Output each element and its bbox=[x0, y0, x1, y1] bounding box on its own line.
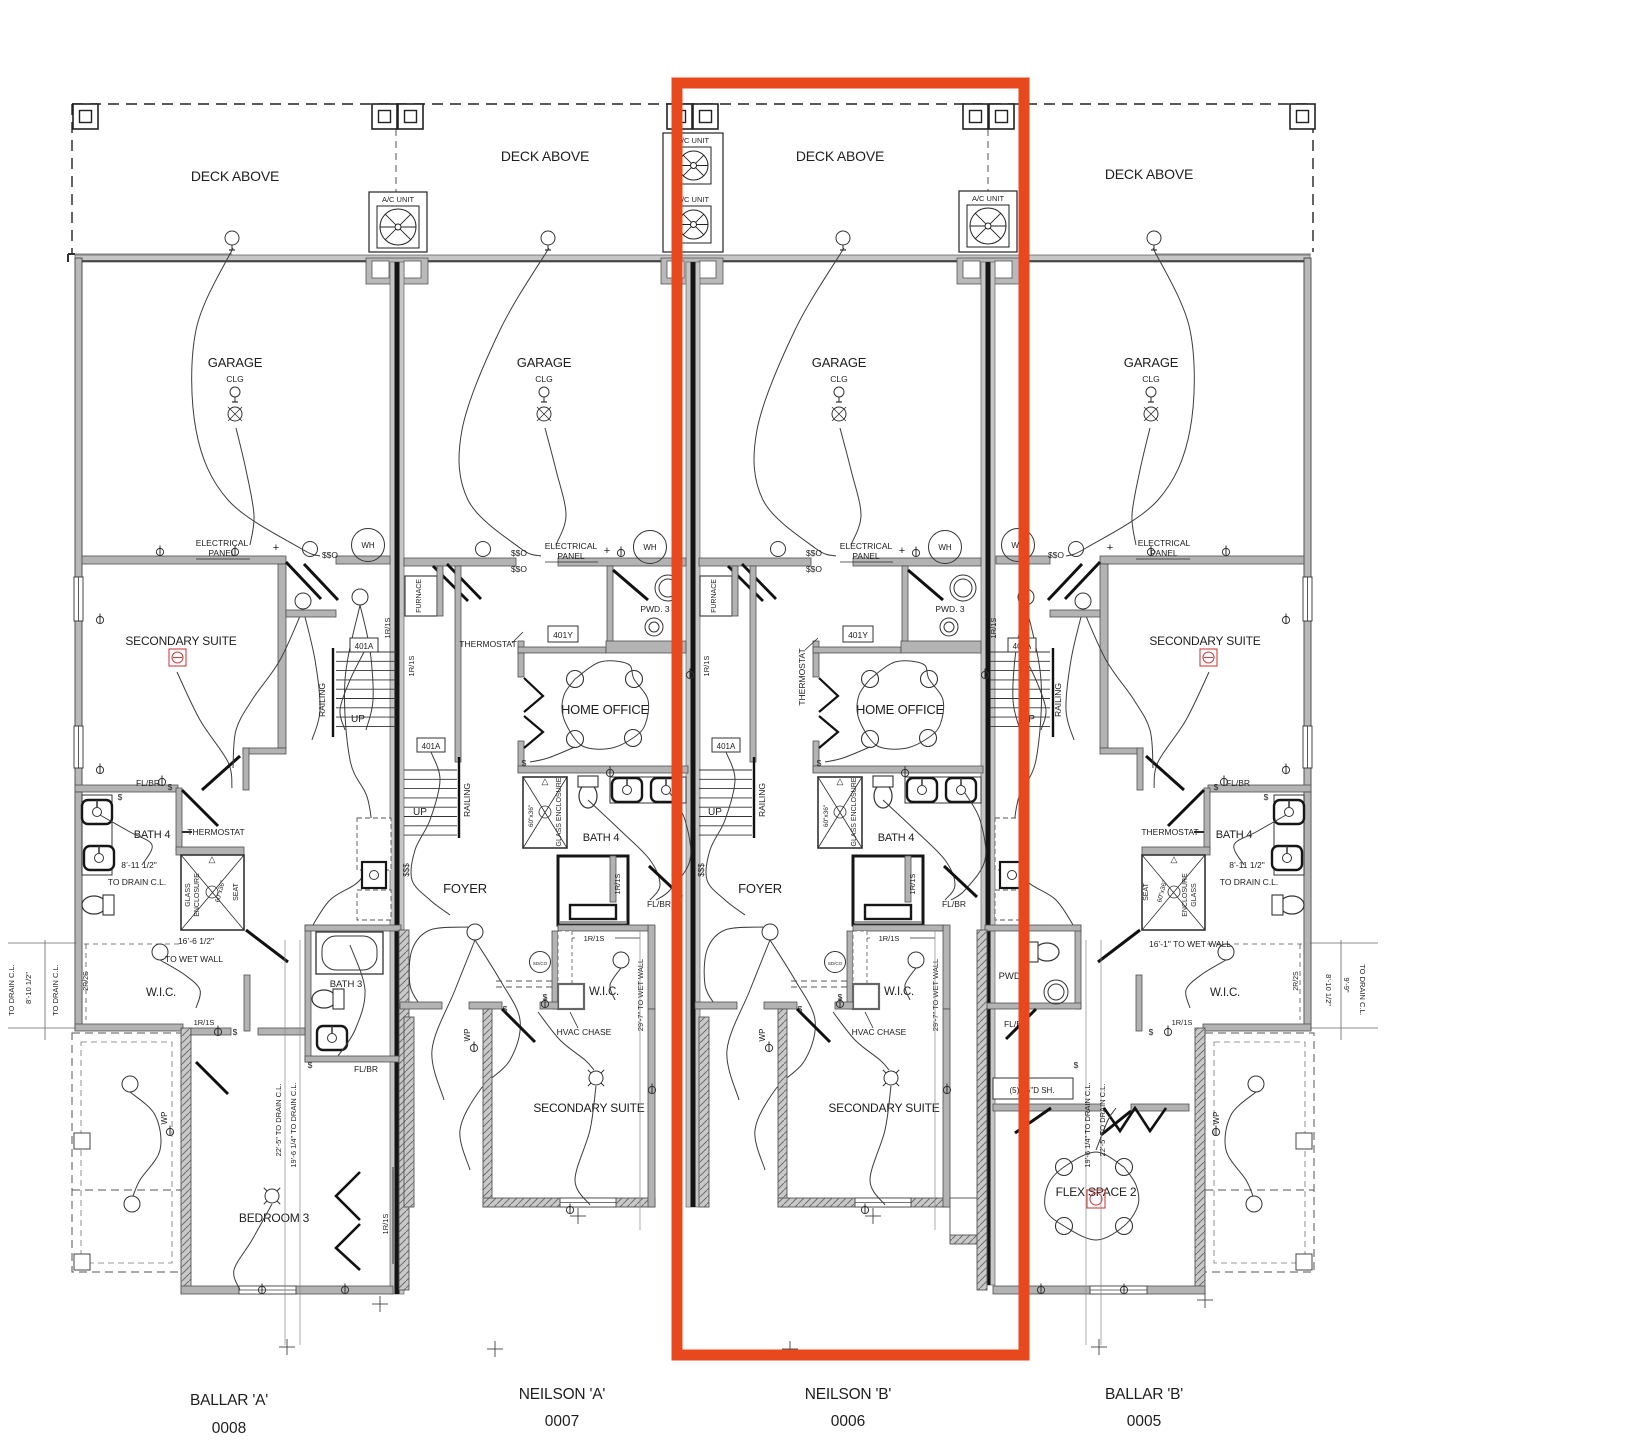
svg-text:GLASS ENCLOSURE: GLASS ENCLOSURE bbox=[556, 777, 563, 846]
svg-text:$: $ bbox=[1214, 782, 1219, 792]
svg-text:ENCLOSURE: ENCLOSURE bbox=[194, 873, 201, 917]
svg-text:FL/BR: FL/BR bbox=[136, 778, 160, 788]
svg-text:FLEX SPACE 2: FLEX SPACE 2 bbox=[1056, 1185, 1137, 1199]
svg-text:UP: UP bbox=[351, 714, 365, 725]
svg-text:HVAC CHASE: HVAC CHASE bbox=[852, 1027, 907, 1037]
svg-text:FOYER: FOYER bbox=[738, 881, 782, 896]
svg-text:22’-5" TO DRAIN C.L.: 22’-5" TO DRAIN C.L. bbox=[274, 1084, 283, 1157]
svg-text:ELECTRICAL: ELECTRICAL bbox=[840, 541, 893, 551]
svg-text:FURNACE: FURNACE bbox=[711, 579, 718, 613]
svg-text:$: $ bbox=[522, 758, 527, 768]
svg-text:RAILING: RAILING bbox=[1053, 683, 1063, 717]
svg-text:△: △ bbox=[837, 776, 844, 786]
svg-text:SEAT: SEAT bbox=[1143, 882, 1150, 900]
svg-text:$: $ bbox=[798, 1004, 803, 1014]
svg-text:9’-9": 9’-9" bbox=[1342, 977, 1351, 993]
svg-text:△: △ bbox=[209, 854, 216, 864]
svg-text:PANEL: PANEL bbox=[852, 551, 880, 561]
svg-text:FL/BR: FL/BR bbox=[1226, 778, 1250, 788]
svg-text:$: $ bbox=[118, 792, 123, 802]
svg-text:$: $ bbox=[1149, 1027, 1154, 1037]
svg-text:SECONDARY SUITE: SECONDARY SUITE bbox=[828, 1101, 939, 1115]
svg-text:19’-6 1/4" TO DRAIN C.L.: 19’-6 1/4" TO DRAIN C.L. bbox=[289, 1082, 298, 1167]
svg-text:DECK ABOVE: DECK ABOVE bbox=[501, 148, 589, 164]
svg-text:W.I.C.: W.I.C. bbox=[146, 987, 176, 999]
svg-text:+: + bbox=[1107, 542, 1113, 554]
svg-text:TO DRAIN C.L.: TO DRAIN C.L. bbox=[7, 964, 16, 1016]
svg-text:1R/1S: 1R/1S bbox=[989, 618, 998, 639]
svg-text:NEILSON 'B': NEILSON 'B' bbox=[805, 1386, 892, 1403]
svg-text:$$$: $$$ bbox=[697, 863, 706, 877]
svg-text:ELECTRICAL: ELECTRICAL bbox=[1138, 538, 1191, 548]
svg-text:GLASS ENCLOSURE: GLASS ENCLOSURE bbox=[851, 777, 858, 846]
svg-text:A/C UNIT: A/C UNIT bbox=[382, 195, 415, 204]
svg-text:8’-10 1/2": 8’-10 1/2" bbox=[24, 972, 33, 1004]
svg-text:0006: 0006 bbox=[831, 1413, 865, 1430]
svg-text:RAILING: RAILING bbox=[317, 683, 327, 717]
svg-text:FL/BR: FL/BR bbox=[647, 899, 671, 909]
svg-text:22’-5" TO DRAIN C.L.: 22’-5" TO DRAIN C.L. bbox=[1098, 1084, 1107, 1157]
svg-text:8’-10 1/2": 8’-10 1/2" bbox=[1324, 974, 1333, 1006]
svg-text:1R/1S: 1R/1S bbox=[702, 656, 711, 677]
svg-text:60"x36": 60"x36" bbox=[823, 804, 830, 827]
svg-text:CLG: CLG bbox=[226, 374, 243, 384]
svg-text:$: $ bbox=[817, 758, 822, 768]
svg-text:BATH 4: BATH 4 bbox=[134, 829, 171, 841]
svg-text:TO WET WALL: TO WET WALL bbox=[165, 954, 223, 964]
svg-text:GARAGE: GARAGE bbox=[812, 355, 867, 370]
svg-text:401Y: 401Y bbox=[553, 630, 573, 640]
svg-text:RAILING: RAILING bbox=[757, 783, 767, 817]
svg-text:CLG: CLG bbox=[830, 374, 847, 384]
svg-text:DECK ABOVE: DECK ABOVE bbox=[1105, 166, 1193, 182]
svg-text:BATH 4: BATH 4 bbox=[583, 832, 620, 844]
svg-text:$$O: $$O bbox=[511, 564, 527, 574]
svg-text:$$O: $$O bbox=[322, 550, 338, 560]
svg-text:$$O: $$O bbox=[1048, 550, 1064, 560]
svg-text:GARAGE: GARAGE bbox=[517, 355, 572, 370]
svg-text:$: $ bbox=[233, 1027, 238, 1037]
svg-text:+: + bbox=[604, 545, 610, 557]
svg-text:FL/BR: FL/BR bbox=[942, 899, 966, 909]
svg-text:$: $ bbox=[503, 1004, 508, 1014]
svg-text:8’-11 1/2": 8’-11 1/2" bbox=[1229, 860, 1264, 870]
svg-text:UP: UP bbox=[708, 807, 722, 818]
svg-text:1R/1S: 1R/1S bbox=[194, 1018, 215, 1027]
svg-text:1R/1S: 1R/1S bbox=[383, 618, 392, 639]
svg-text:W.I.C.: W.I.C. bbox=[589, 986, 619, 998]
svg-text:TO DRAIN C.L.: TO DRAIN C.L. bbox=[1220, 877, 1278, 887]
svg-text:1R/1S: 1R/1S bbox=[407, 656, 416, 677]
svg-text:UP: UP bbox=[413, 807, 427, 818]
svg-text:A/C UNIT: A/C UNIT bbox=[972, 194, 1005, 203]
svg-text:FURNACE: FURNACE bbox=[416, 579, 423, 613]
svg-text:GLASS: GLASS bbox=[185, 883, 192, 907]
svg-text:PWD. 3: PWD. 3 bbox=[935, 604, 965, 614]
svg-text:1R/1S: 1R/1S bbox=[584, 934, 605, 943]
svg-text:$: $ bbox=[308, 1060, 313, 1070]
svg-text:29’-7" TO WET WALL: 29’-7" TO WET WALL bbox=[931, 959, 940, 1031]
svg-text:WH: WH bbox=[361, 541, 375, 550]
svg-text:401Y: 401Y bbox=[848, 630, 868, 640]
svg-text:29’-7" TO WET WALL: 29’-7" TO WET WALL bbox=[636, 959, 645, 1031]
svg-text:FL/BR: FL/BR bbox=[354, 1064, 378, 1074]
svg-text:1R/1S: 1R/1S bbox=[879, 934, 900, 943]
svg-text:1R/1S: 1R/1S bbox=[381, 1214, 390, 1235]
svg-text:BATH 4: BATH 4 bbox=[1216, 829, 1253, 841]
svg-text:TO DRAIN C.L.: TO DRAIN C.L. bbox=[1358, 964, 1367, 1016]
svg-text:0008: 0008 bbox=[212, 1420, 246, 1437]
svg-text:16’-6 1/2": 16’-6 1/2" bbox=[178, 936, 214, 946]
svg-text:ENCLOSURE: ENCLOSURE bbox=[1182, 873, 1189, 917]
svg-text:BATH 3: BATH 3 bbox=[330, 979, 363, 990]
svg-text:DECK ABOVE: DECK ABOVE bbox=[796, 148, 884, 164]
svg-text:CLG: CLG bbox=[1142, 374, 1159, 384]
svg-text:BATH 4: BATH 4 bbox=[878, 832, 915, 844]
svg-text:2R/2S: 2R/2S bbox=[1293, 971, 1300, 991]
svg-text:(5) 16"D SH.: (5) 16"D SH. bbox=[1009, 1086, 1054, 1095]
svg-text:THERMOSTAT: THERMOSTAT bbox=[459, 639, 516, 649]
svg-text:W.I.C.: W.I.C. bbox=[884, 986, 914, 998]
svg-text:GARAGE: GARAGE bbox=[1124, 355, 1179, 370]
svg-text:19’-6 1/4" TO DRAIN C.L.: 19’-6 1/4" TO DRAIN C.L. bbox=[1083, 1082, 1092, 1167]
svg-text:THERMOSTAT: THERMOSTAT bbox=[1141, 827, 1198, 837]
svg-text:WP: WP bbox=[758, 1029, 767, 1042]
svg-text:$$O: $$O bbox=[806, 548, 822, 558]
svg-text:RAILING: RAILING bbox=[462, 783, 472, 817]
svg-text:$: $ bbox=[1264, 792, 1269, 802]
svg-text:$: $ bbox=[1074, 1060, 1079, 1070]
svg-text:ELECTRICAL: ELECTRICAL bbox=[545, 541, 598, 551]
svg-text:8’-11 1/2": 8’-11 1/2" bbox=[121, 860, 156, 870]
svg-text:ELECTRICAL: ELECTRICAL bbox=[196, 538, 249, 548]
svg-text:$$O: $$O bbox=[806, 564, 822, 574]
svg-text:BALLAR 'A': BALLAR 'A' bbox=[190, 1392, 268, 1409]
svg-text:GLASS: GLASS bbox=[1191, 883, 1198, 907]
svg-text:DECK ABOVE: DECK ABOVE bbox=[191, 168, 279, 184]
svg-text:0007: 0007 bbox=[545, 1413, 579, 1430]
svg-text:$: $ bbox=[838, 992, 843, 1002]
svg-text:NEILSON 'A': NEILSON 'A' bbox=[519, 1386, 606, 1403]
svg-text:1R/1S: 1R/1S bbox=[1172, 1018, 1193, 1027]
svg-text:HOME OFFICE: HOME OFFICE bbox=[561, 702, 650, 717]
svg-text:GARAGE: GARAGE bbox=[208, 355, 263, 370]
svg-text:HOME OFFICE: HOME OFFICE bbox=[856, 702, 945, 717]
svg-text:+: + bbox=[273, 542, 279, 554]
svg-text:WP: WP bbox=[1212, 1112, 1221, 1125]
svg-text:FOYER: FOYER bbox=[443, 881, 487, 896]
svg-text:PWD. 3: PWD. 3 bbox=[640, 604, 670, 614]
svg-text:△: △ bbox=[542, 776, 549, 786]
svg-text:BEDROOM 3: BEDROOM 3 bbox=[239, 1211, 310, 1225]
svg-text:SECONDARY SUITE: SECONDARY SUITE bbox=[1149, 634, 1260, 648]
svg-text:PANEL: PANEL bbox=[557, 551, 585, 561]
svg-text:401A: 401A bbox=[355, 642, 374, 651]
svg-text:WP: WP bbox=[463, 1029, 472, 1042]
svg-text:$: $ bbox=[168, 782, 173, 792]
svg-text:TO DRAIN C.L.: TO DRAIN C.L. bbox=[51, 964, 60, 1016]
svg-text:$$$: $$$ bbox=[402, 863, 411, 877]
svg-text:HVAC CHASE: HVAC CHASE bbox=[557, 1027, 612, 1037]
svg-text:401A: 401A bbox=[717, 742, 736, 751]
svg-text:WP: WP bbox=[160, 1112, 169, 1125]
svg-text:CLG: CLG bbox=[535, 374, 552, 384]
svg-text:THERMOSTAT: THERMOSTAT bbox=[187, 827, 244, 837]
svg-text:+: + bbox=[899, 545, 905, 557]
svg-text:SEAT: SEAT bbox=[233, 882, 240, 900]
svg-text:BALLAR 'B': BALLAR 'B' bbox=[1105, 1386, 1183, 1403]
svg-text:0005: 0005 bbox=[1127, 1413, 1161, 1430]
svg-text:THERMOSTAT: THERMOSTAT bbox=[797, 648, 807, 705]
svg-text:1R/1S: 1R/1S bbox=[613, 874, 622, 895]
svg-text:60"x36": 60"x36" bbox=[528, 804, 535, 827]
svg-text:$: $ bbox=[543, 992, 548, 1002]
svg-text:△: △ bbox=[1171, 854, 1178, 864]
svg-text:SD/CO: SD/CO bbox=[828, 961, 843, 966]
svg-text:W.I.C.: W.I.C. bbox=[1210, 987, 1240, 999]
svg-text:SECONDARY SUITE: SECONDARY SUITE bbox=[125, 634, 236, 648]
svg-text:WH: WH bbox=[938, 543, 952, 552]
svg-text:SD/CO: SD/CO bbox=[533, 961, 548, 966]
svg-text:1R/1S: 1R/1S bbox=[908, 874, 917, 895]
svg-text:WH: WH bbox=[643, 543, 657, 552]
svg-text:TO DRAIN C.L.: TO DRAIN C.L. bbox=[108, 877, 166, 887]
svg-text:2R/2S: 2R/2S bbox=[83, 971, 90, 991]
svg-text:$$O: $$O bbox=[511, 548, 527, 558]
svg-text:SECONDARY SUITE: SECONDARY SUITE bbox=[533, 1101, 644, 1115]
svg-text:401A: 401A bbox=[422, 742, 441, 751]
